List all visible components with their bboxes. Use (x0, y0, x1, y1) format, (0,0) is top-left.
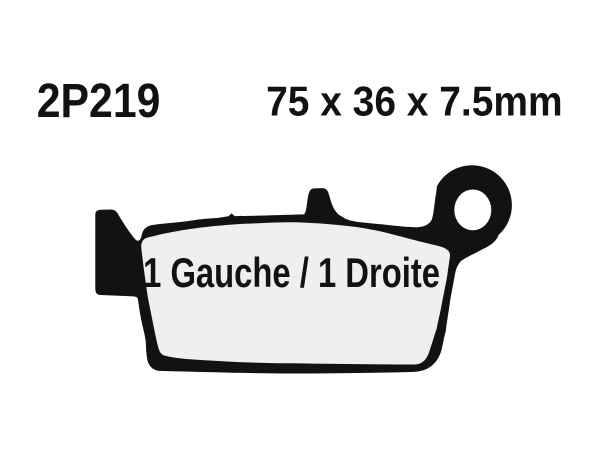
svg-text:75 x 36 x 7.5mm: 75 x 36 x 7.5mm (266, 77, 562, 125)
svg-text:1 Gauche / 1 Droite: 1 Gauche / 1 Droite (143, 249, 440, 296)
svg-text:2P219: 2P219 (37, 74, 161, 128)
